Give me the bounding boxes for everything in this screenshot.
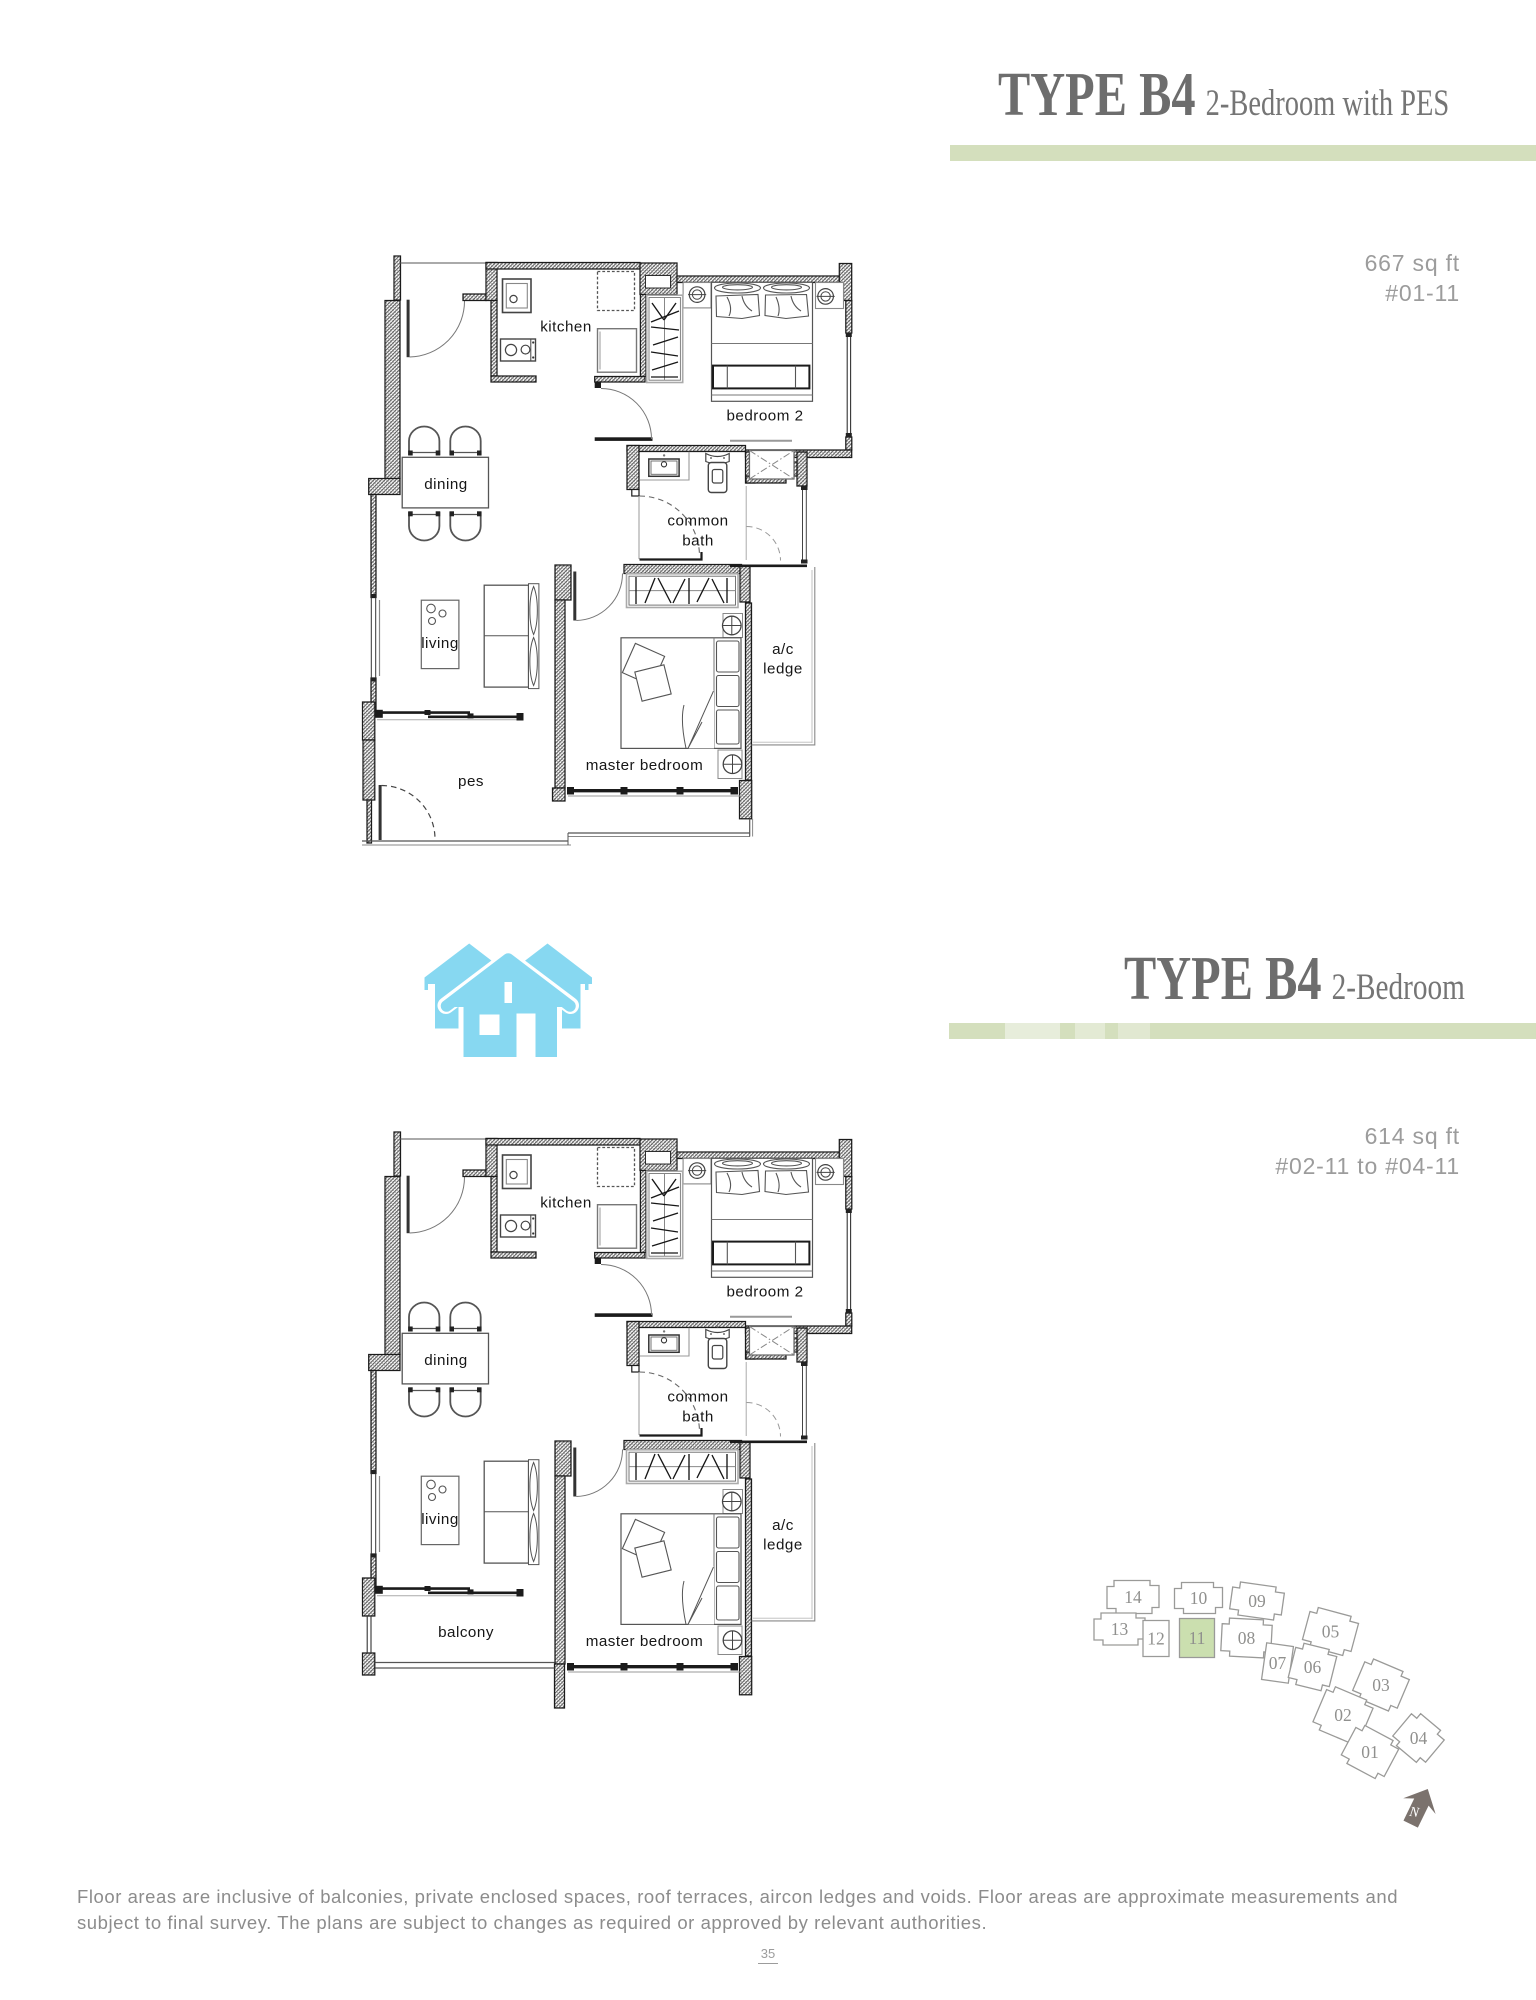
svg-text:01: 01 bbox=[1361, 1742, 1379, 1762]
svg-text:07: 07 bbox=[1269, 1653, 1287, 1673]
svg-text:06: 06 bbox=[1304, 1657, 1322, 1677]
svg-text:02: 02 bbox=[1334, 1705, 1352, 1725]
svg-text:13: 13 bbox=[1111, 1619, 1129, 1639]
svg-text:12: 12 bbox=[1147, 1629, 1165, 1649]
svg-text:pes: pes bbox=[458, 773, 484, 790]
svg-text:14: 14 bbox=[1124, 1587, 1142, 1607]
svg-text:11: 11 bbox=[1189, 1628, 1206, 1648]
svg-text:04: 04 bbox=[1410, 1728, 1428, 1748]
svg-text:08: 08 bbox=[1238, 1628, 1256, 1648]
svg-text:05: 05 bbox=[1322, 1622, 1340, 1642]
svg-text:09: 09 bbox=[1248, 1591, 1266, 1611]
svg-text:03: 03 bbox=[1372, 1675, 1390, 1695]
svg-text:balcony: balcony bbox=[438, 1624, 494, 1641]
svg-text:10: 10 bbox=[1190, 1588, 1208, 1608]
